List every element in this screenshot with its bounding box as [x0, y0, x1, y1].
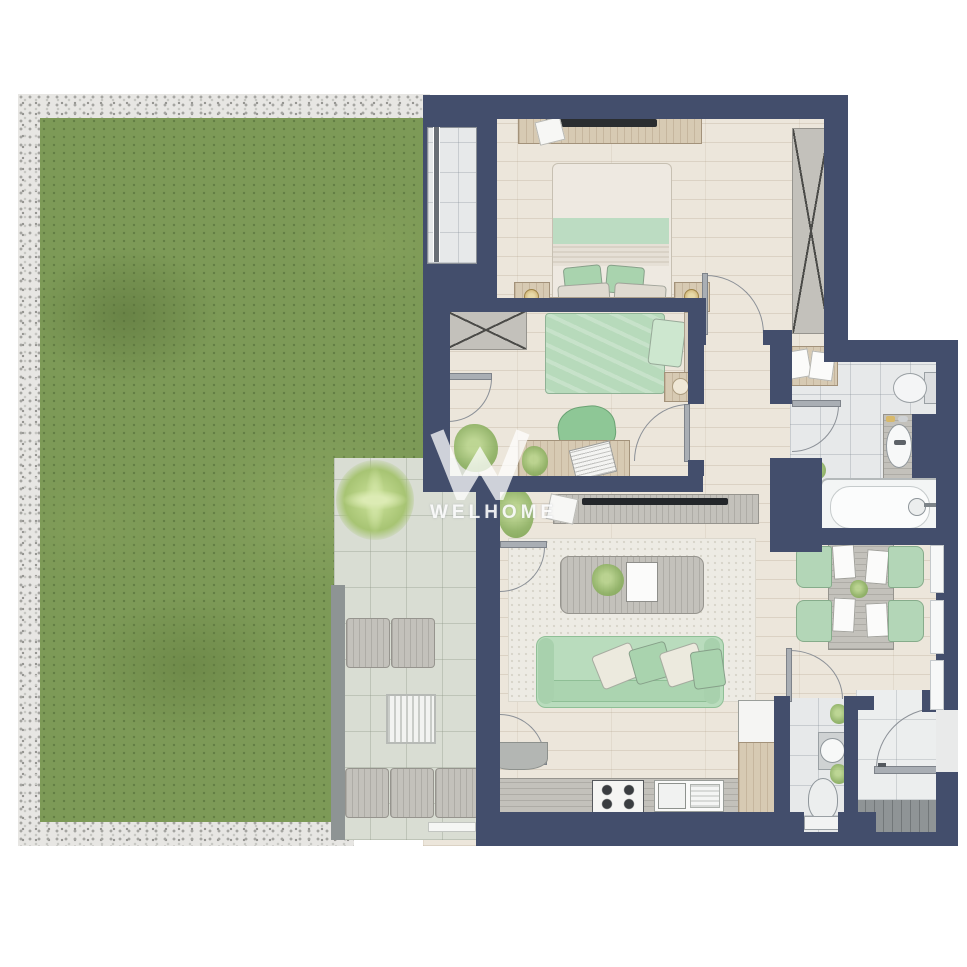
bathroom-toilet-bowl [893, 373, 927, 403]
dining-chair [796, 600, 832, 642]
bedroom2-wardrobe [445, 310, 527, 350]
garden-gravel-border-bottom [18, 820, 354, 846]
wall-entry-floor-stub [856, 812, 876, 834]
wc-door-leaf [786, 648, 792, 702]
dining-placemat [865, 549, 890, 585]
bedroom2-door-leaf [684, 404, 690, 462]
bathroom-door-leaf [792, 400, 841, 407]
window-right-1 [930, 545, 944, 593]
wall-bath-partition [912, 414, 938, 478]
kitchen-sink-basin [658, 783, 686, 809]
entry-door-leaf [874, 766, 938, 774]
wall-bedrooms-divider [423, 298, 704, 312]
wall-entry-stub [844, 696, 874, 710]
floor-plan: WELHOME [0, 0, 967, 967]
garden-gravel-border-left [18, 94, 42, 846]
wall-bottom-main [476, 812, 776, 846]
master-bed-green-runner [553, 218, 669, 244]
terrace-side-wall [331, 585, 345, 840]
wall-living-left [476, 476, 500, 818]
bathtub-faucet [908, 498, 926, 516]
wall-bathroom-left-upper [770, 345, 792, 404]
wall-corridor-top-right [763, 330, 792, 345]
bathroom-vanity-faucet [894, 440, 906, 445]
welhome-watermark-text: WELHOME [430, 502, 557, 524]
wall-bedroom2-right-upper [688, 312, 704, 404]
entry-door-handle [878, 763, 886, 767]
terrace-chair [390, 768, 434, 818]
wall-right-upper [824, 95, 848, 345]
terrace-chair [345, 768, 389, 818]
bedroom2-single-bed [545, 313, 665, 394]
bathroom-soap [886, 416, 895, 422]
wc-washbasin [820, 738, 845, 763]
entry-door-opening [936, 710, 958, 772]
terrace-slatted-table [386, 694, 436, 744]
dining-placemat [832, 597, 856, 632]
sofa-pillow [690, 648, 727, 690]
window-right-2 [930, 600, 944, 654]
window-right-3 [930, 660, 944, 710]
coffee-table-tray [626, 562, 658, 602]
terrace-chair [346, 618, 390, 668]
kitchen-stove [592, 780, 644, 814]
wall-bedroom2-right-lower [688, 460, 704, 476]
terrace-chair [391, 618, 435, 668]
terrace-door-leaf-upper [500, 541, 547, 548]
kitchen-side-counter [738, 742, 776, 814]
dining-chair [796, 546, 832, 588]
bathroom-soap [898, 416, 908, 422]
living-tv [582, 498, 728, 505]
bedroom2-side-table-dish [672, 378, 689, 395]
wall-below-bathtub [810, 528, 940, 545]
garden-door-leaf [446, 373, 492, 380]
welhome-logo-icon [430, 428, 530, 500]
sofa-back-cushion [542, 680, 718, 702]
wall-wc-stub [838, 812, 854, 834]
garden-gravel-border-top [18, 94, 430, 120]
outside-cutout-top-right [848, 95, 960, 340]
wc-toilet-tank [804, 816, 840, 830]
dining-chair [888, 546, 924, 588]
wall-step-out [824, 340, 958, 362]
master-bed-sheet-folds [553, 244, 669, 266]
terrace-palm-plant [336, 460, 414, 540]
bathtub-spout [924, 503, 936, 507]
dining-placemat [832, 544, 856, 579]
terrace-step [428, 822, 476, 832]
kitchen-sink-drainboard [690, 784, 720, 808]
dining-table-plant [850, 580, 868, 598]
bedroom2-pillow [647, 318, 686, 368]
sofa-armrest [538, 638, 554, 704]
terrace-chair [435, 768, 479, 818]
kitchen-fridge [738, 700, 776, 744]
window-garden-frame [433, 127, 440, 262]
bathroom-vanity-basin [886, 424, 912, 468]
wall-bottom-right [774, 832, 958, 846]
wc-toilet-bowl [808, 778, 838, 820]
dining-placemat [865, 602, 889, 637]
dining-chair [888, 600, 924, 642]
wall-wc-stub [788, 812, 804, 834]
coffee-table-plant [592, 564, 624, 596]
